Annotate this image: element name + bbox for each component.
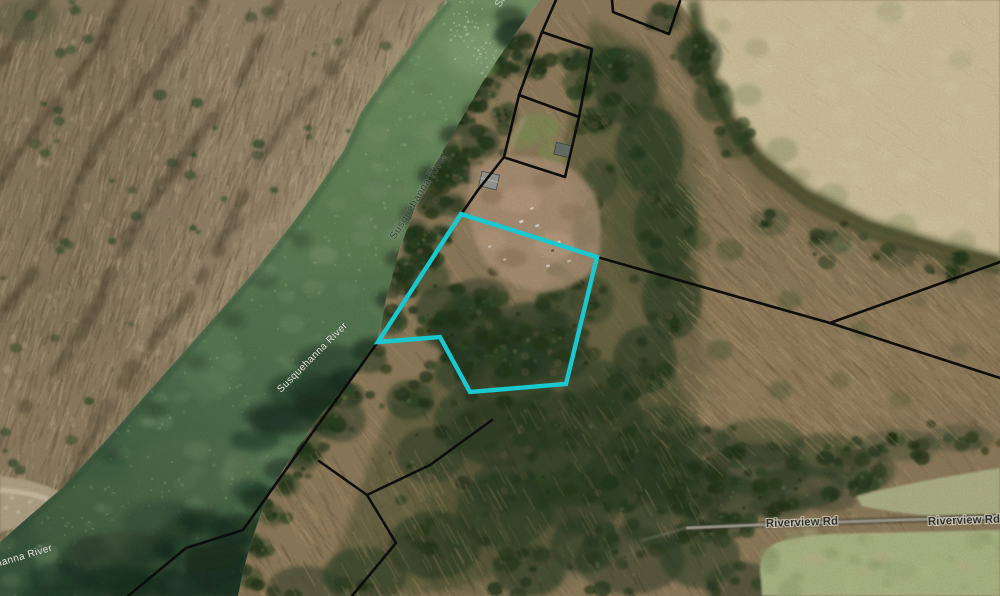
svg-text:Riverview Rd: Riverview Rd: [928, 513, 1000, 528]
svg-text:Riverview Rd: Riverview Rd: [766, 515, 839, 530]
